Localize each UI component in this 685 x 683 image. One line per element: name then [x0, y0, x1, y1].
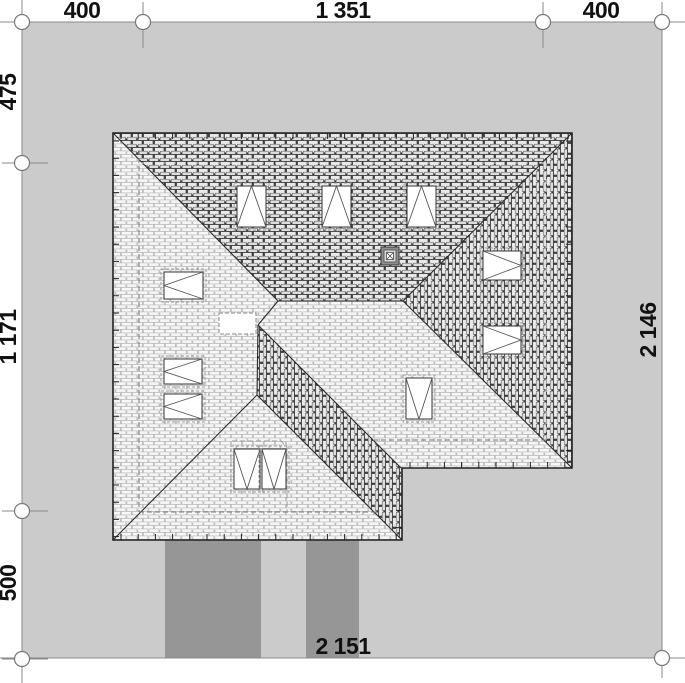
- dim-label-top-middle: 1 351: [315, 0, 371, 23]
- roof-window: [259, 446, 289, 492]
- dim-node: [15, 156, 30, 171]
- roof-window: [404, 183, 439, 230]
- dim-node: [136, 15, 151, 30]
- dim-label-top-left: 400: [64, 0, 101, 23]
- dim-node: [15, 504, 30, 519]
- roof-window: [480, 248, 524, 283]
- dim-node: [15, 15, 30, 30]
- roof-hatch: [219, 313, 256, 334]
- dim-node: [655, 651, 670, 666]
- driveway-left: [165, 540, 261, 658]
- roof-window: [161, 356, 205, 387]
- dim-label-left-lower: 500: [0, 565, 21, 602]
- roof-window: [231, 446, 263, 492]
- roof-window: [480, 323, 524, 357]
- roof-window: [319, 183, 354, 230]
- dim-label-right: 2 146: [635, 302, 661, 357]
- dim-node: [536, 15, 551, 30]
- dim-label-bottom: 2 151: [315, 633, 371, 659]
- roof-window: [161, 391, 205, 422]
- roof-window: [403, 375, 435, 422]
- site-plan-page: 400 1 351 400 475 1 171 500 2 146 2 151: [0, 0, 685, 683]
- dim-node: [15, 652, 30, 667]
- dim-node: [655, 15, 670, 30]
- chimney: [381, 247, 399, 265]
- roof-plan-drawing: 400 1 351 400 475 1 171 500 2 146 2 151: [0, 0, 685, 683]
- dim-label-left-upper: 475: [0, 73, 21, 111]
- dim-label-top-right: 400: [583, 0, 620, 23]
- roof-window: [234, 183, 269, 230]
- roof-window: [161, 269, 206, 302]
- dim-label-left-middle: 1 171: [0, 309, 21, 365]
